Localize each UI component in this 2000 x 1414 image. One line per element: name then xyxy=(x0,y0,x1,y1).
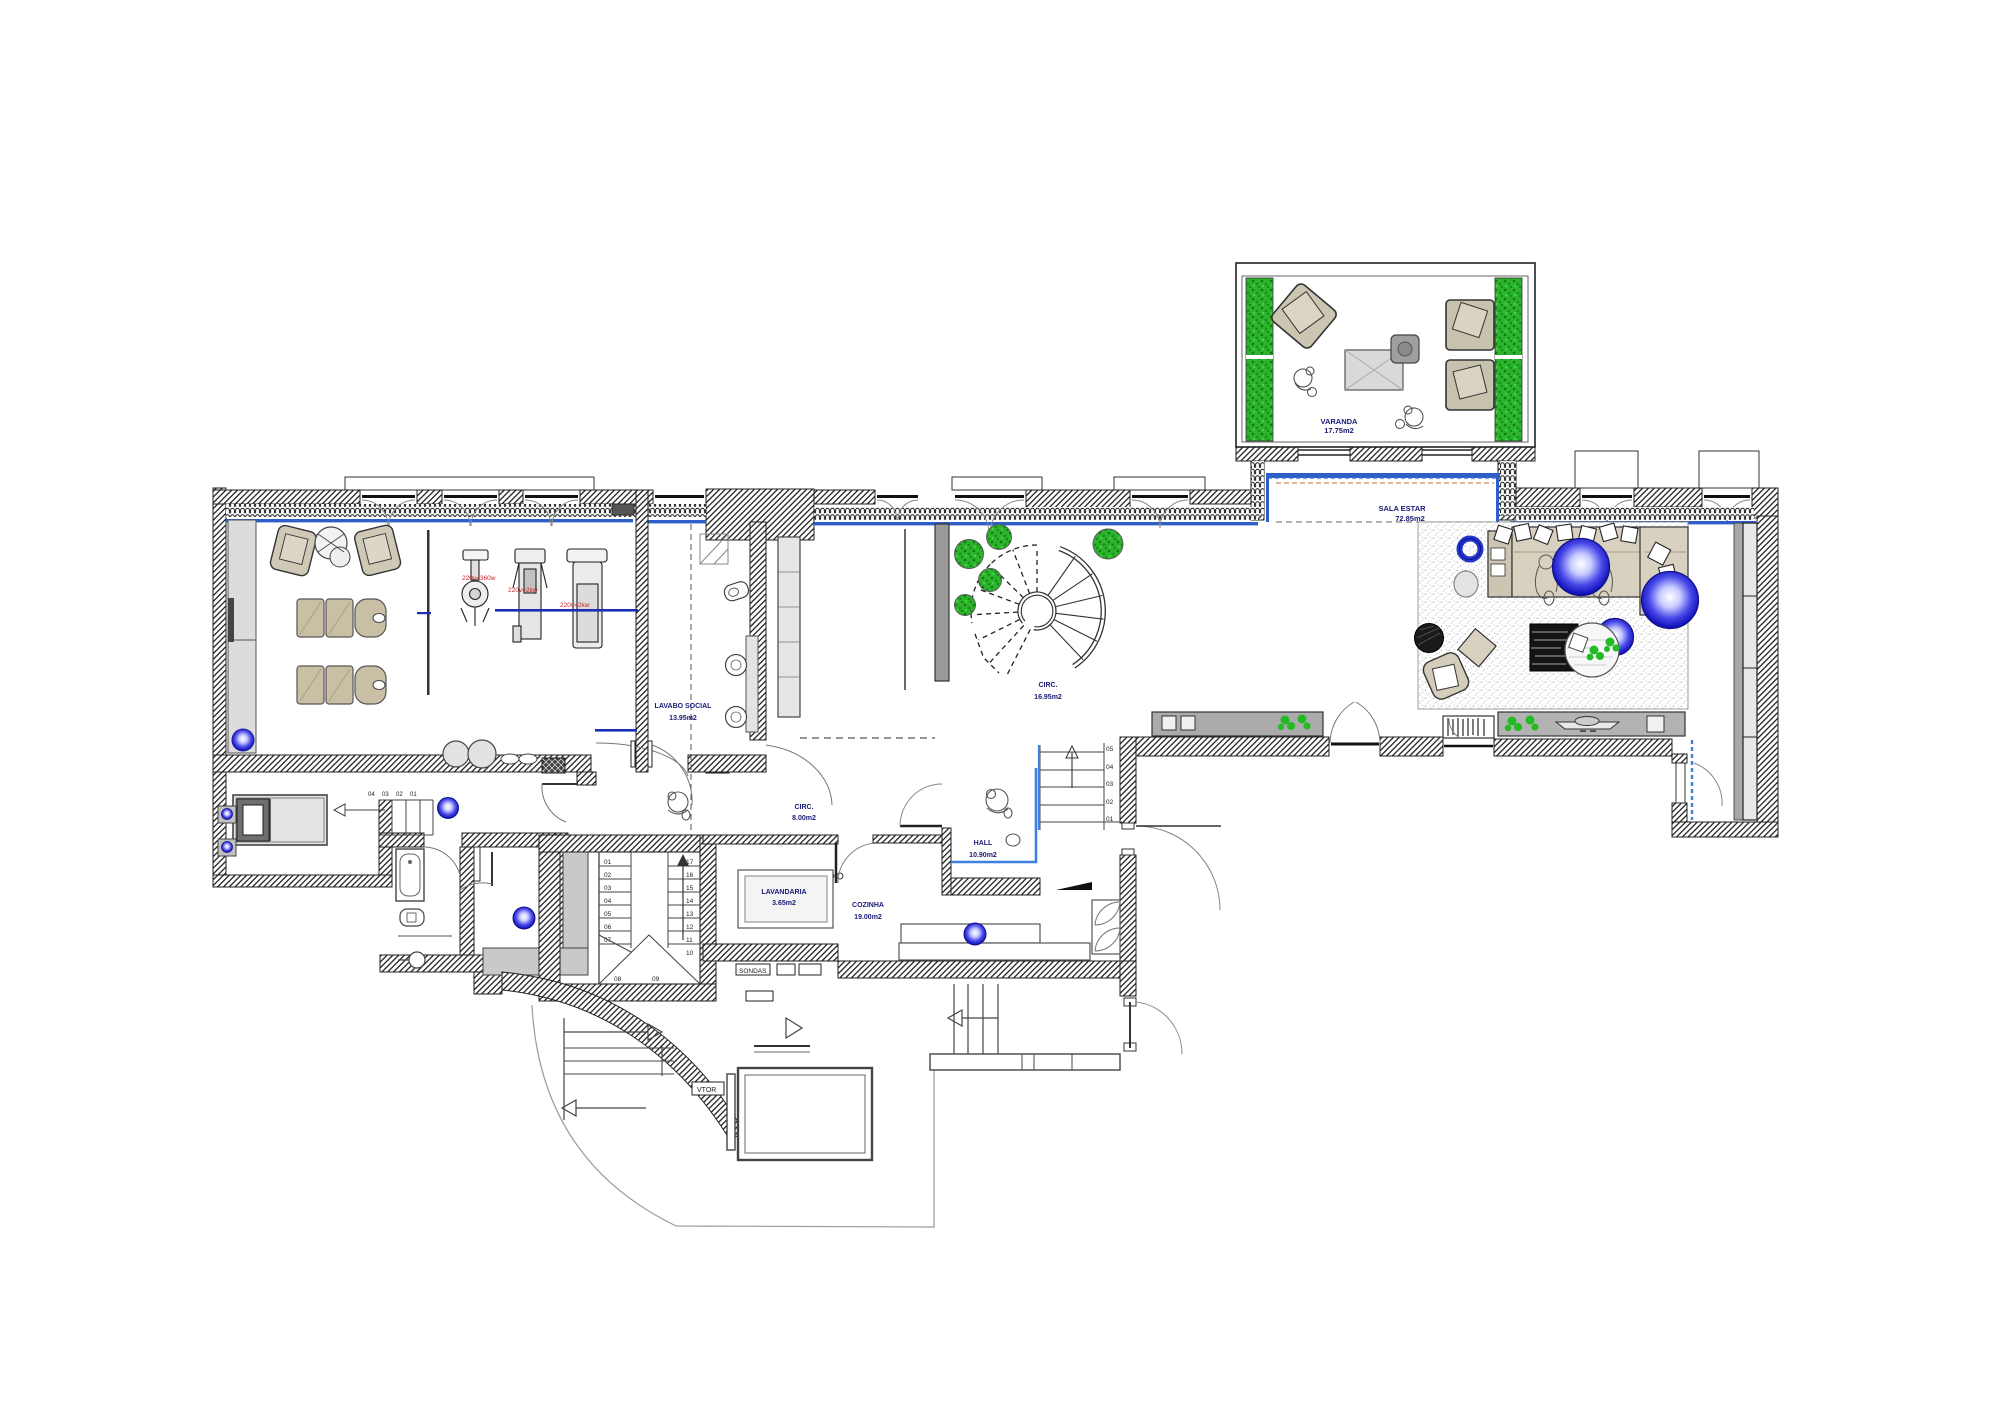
svg-text:16.95m2: 16.95m2 xyxy=(1034,694,1062,701)
svg-text:SALA ESTAR: SALA ESTAR xyxy=(1378,504,1426,513)
svg-text:VTOR: VTOR xyxy=(697,1087,716,1094)
svg-text:04: 04 xyxy=(368,792,375,798)
svg-text:11: 11 xyxy=(686,937,693,944)
svg-text:HALL: HALL xyxy=(974,840,993,847)
svg-text:09: 09 xyxy=(652,976,660,983)
svg-text:220v=2kw: 220v=2kw xyxy=(560,602,590,609)
svg-text:13.95m2: 13.95m2 xyxy=(669,715,697,722)
svg-text:01: 01 xyxy=(1106,816,1114,823)
svg-text:02: 02 xyxy=(1106,799,1114,806)
svg-text:CIRC.: CIRC. xyxy=(1038,682,1057,689)
svg-text:04: 04 xyxy=(1106,764,1114,771)
svg-text:CIRC.: CIRC. xyxy=(794,804,813,811)
svg-text:03: 03 xyxy=(604,885,612,892)
svg-text:02: 02 xyxy=(604,872,612,879)
svg-text:COZINHA: COZINHA xyxy=(852,902,884,909)
svg-text:01: 01 xyxy=(410,792,417,798)
svg-text:13: 13 xyxy=(686,911,694,918)
svg-text:08: 08 xyxy=(614,976,622,983)
svg-text:19.00m2: 19.00m2 xyxy=(854,914,882,921)
svg-text:03: 03 xyxy=(1106,781,1114,788)
svg-text:02: 02 xyxy=(396,792,403,798)
svg-text:17.75m2: 17.75m2 xyxy=(1324,426,1354,435)
svg-text:16: 16 xyxy=(686,872,694,879)
svg-text:04: 04 xyxy=(604,898,612,905)
svg-text:220v=2kw: 220v=2kw xyxy=(508,587,538,594)
svg-text:LAVABO SOCIAL: LAVABO SOCIAL xyxy=(655,703,713,710)
svg-text:SONDAS: SONDAS xyxy=(739,968,767,975)
svg-text:06: 06 xyxy=(604,924,612,931)
svg-text:05: 05 xyxy=(1106,746,1114,753)
svg-text:10: 10 xyxy=(686,950,694,957)
svg-text:15: 15 xyxy=(686,885,694,892)
svg-text:05: 05 xyxy=(604,911,612,918)
svg-text:220v=360w: 220v=360w xyxy=(462,575,496,582)
svg-text:14: 14 xyxy=(686,898,694,905)
svg-text:VARANDA: VARANDA xyxy=(1321,417,1359,426)
svg-text:10.90m2: 10.90m2 xyxy=(969,852,997,859)
svg-text:3.65m2: 3.65m2 xyxy=(772,900,796,907)
svg-text:01: 01 xyxy=(604,859,612,866)
svg-text:12: 12 xyxy=(686,924,694,931)
svg-text:LAVANDARIA: LAVANDARIA xyxy=(761,889,806,896)
svg-text:8.00m2: 8.00m2 xyxy=(792,815,816,822)
svg-text:03: 03 xyxy=(382,792,389,798)
